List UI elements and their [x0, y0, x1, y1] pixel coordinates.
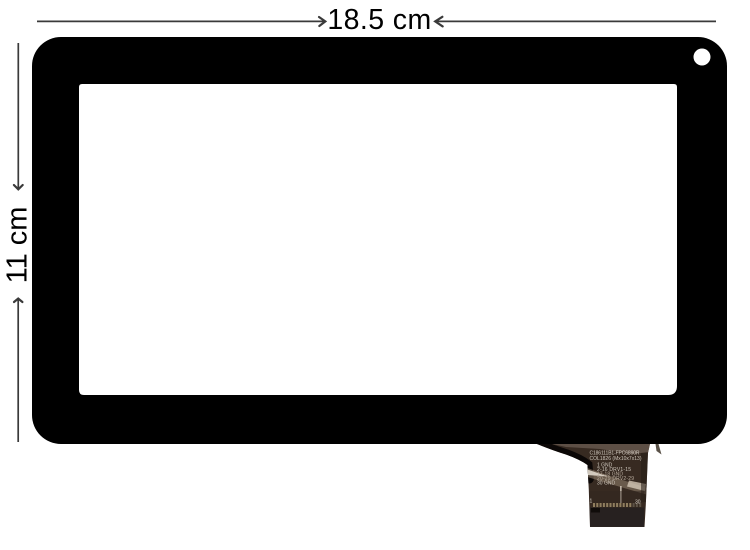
svg-text:COL1826 (Mx10x7x13): COL1826 (Mx10x7x13) [590, 456, 642, 462]
svg-text:30 GND: 30 GND [597, 481, 615, 487]
svg-text:30: 30 [635, 500, 641, 506]
svg-text:1: 1 [590, 499, 593, 505]
svg-text:11 cm: 11 cm [2, 207, 34, 284]
svg-text:18.5 cm: 18.5 cm [327, 4, 431, 36]
